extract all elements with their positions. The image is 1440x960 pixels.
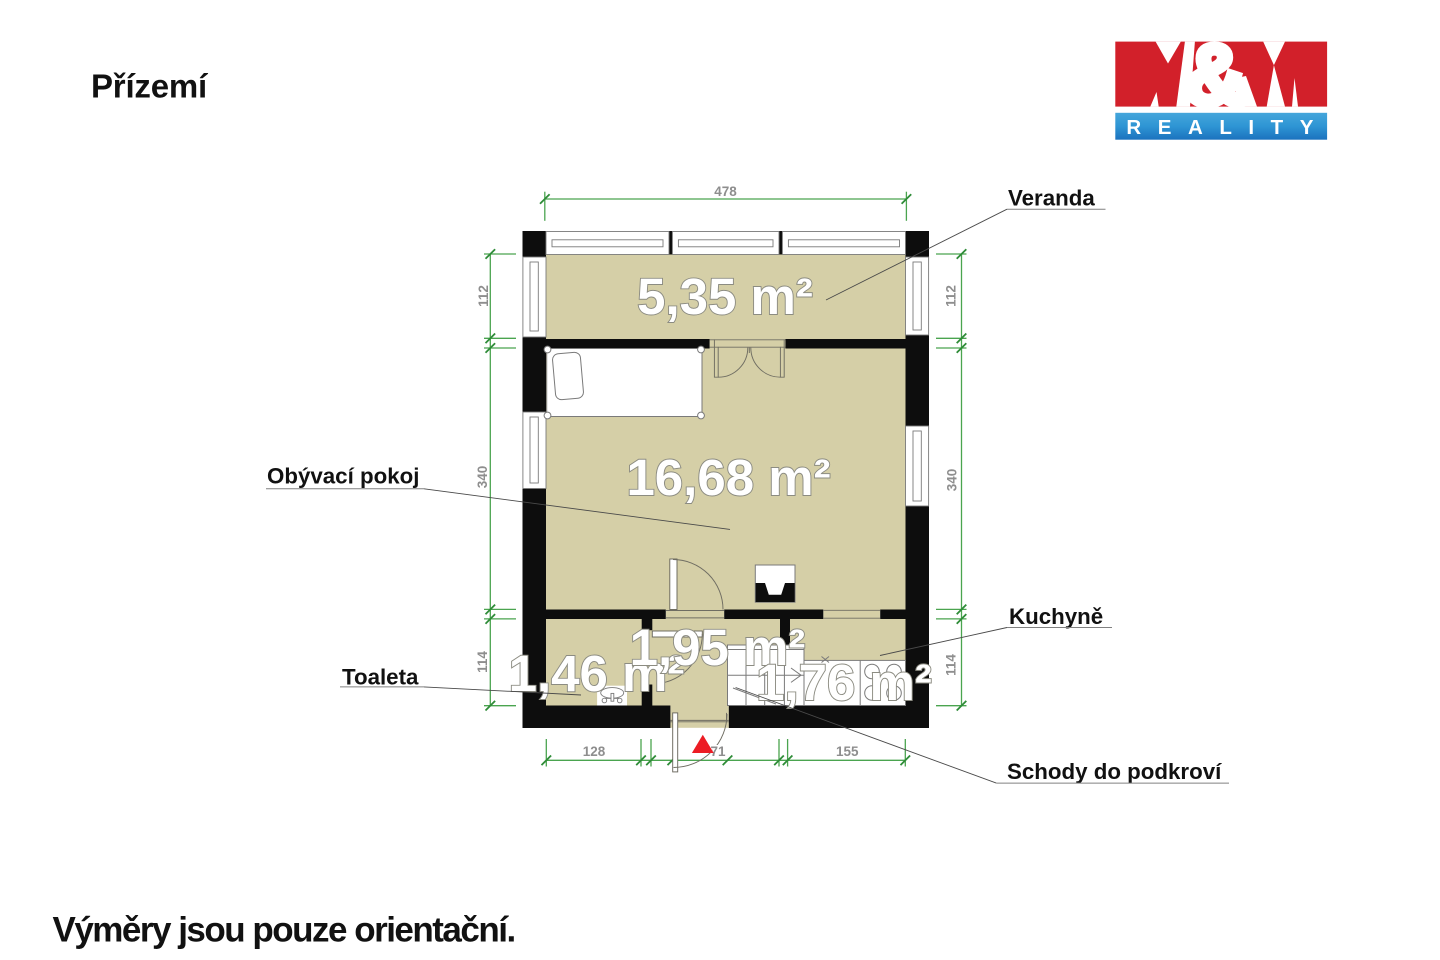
svg-text:Schody do podkroví: Schody do podkroví [1007, 759, 1222, 784]
svg-text:Výměry jsou pouze orientační.: Výměry jsou pouze orientační. [53, 911, 515, 950]
svg-text:Přízemí: Přízemí [91, 68, 209, 105]
svg-text:Veranda: Veranda [1008, 185, 1095, 210]
svg-text:Kuchyně: Kuchyně [1009, 604, 1103, 629]
svg-text:340: 340 [945, 469, 960, 492]
svg-text:Obývací pokoj: Obývací pokoj [267, 464, 419, 489]
svg-text:&: & [1184, 28, 1245, 123]
svg-text:71: 71 [710, 744, 726, 759]
svg-text:16,68 m²: 16,68 m² [626, 449, 830, 506]
svg-text:5,35 m²: 5,35 m² [637, 268, 813, 325]
svg-text:128: 128 [583, 744, 606, 759]
svg-text:478: 478 [714, 184, 737, 199]
svg-text:112: 112 [944, 285, 959, 307]
svg-text:114: 114 [944, 654, 959, 676]
svg-text:112: 112 [476, 285, 491, 307]
svg-text:155: 155 [836, 744, 859, 759]
svg-text:340: 340 [475, 466, 490, 489]
svg-text:1,76 m²: 1,76 m² [756, 654, 932, 711]
svg-text:Toaleta: Toaleta [342, 665, 419, 690]
svg-text:114: 114 [475, 651, 490, 673]
